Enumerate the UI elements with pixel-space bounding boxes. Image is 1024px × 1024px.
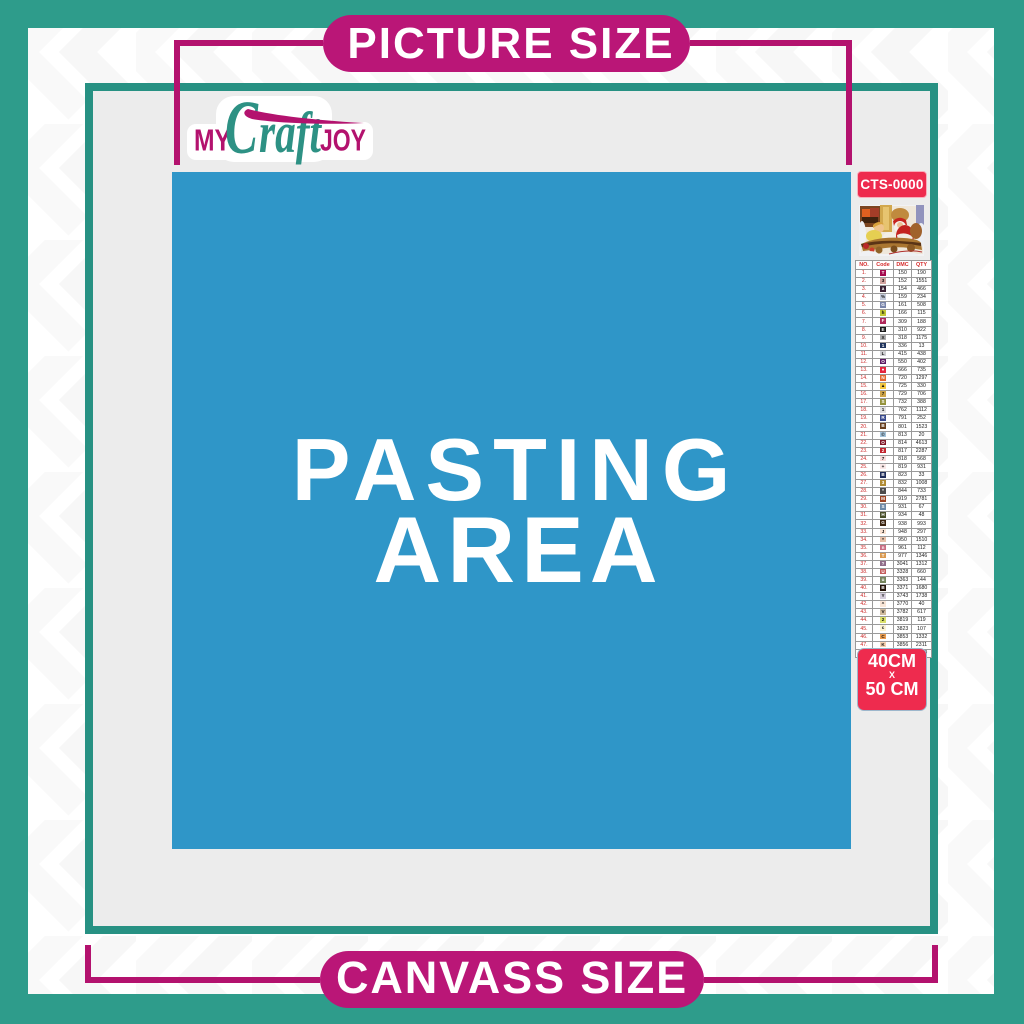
svg-text:raft: raft <box>259 100 322 165</box>
svg-text:JOY: JOY <box>320 123 366 158</box>
svg-text:C: C <box>225 96 259 165</box>
